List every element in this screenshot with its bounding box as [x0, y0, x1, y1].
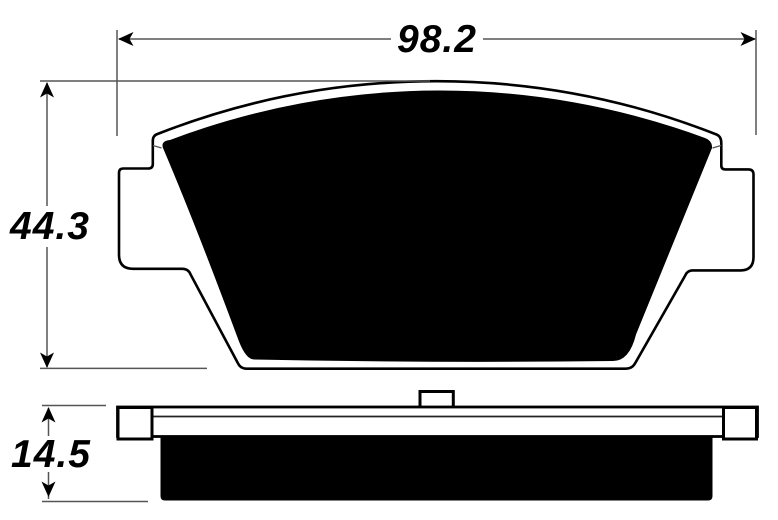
svg-text:44.3: 44.3	[9, 205, 90, 248]
svg-text:14.5: 14.5	[11, 433, 91, 476]
svg-text:98.2: 98.2	[397, 18, 477, 61]
